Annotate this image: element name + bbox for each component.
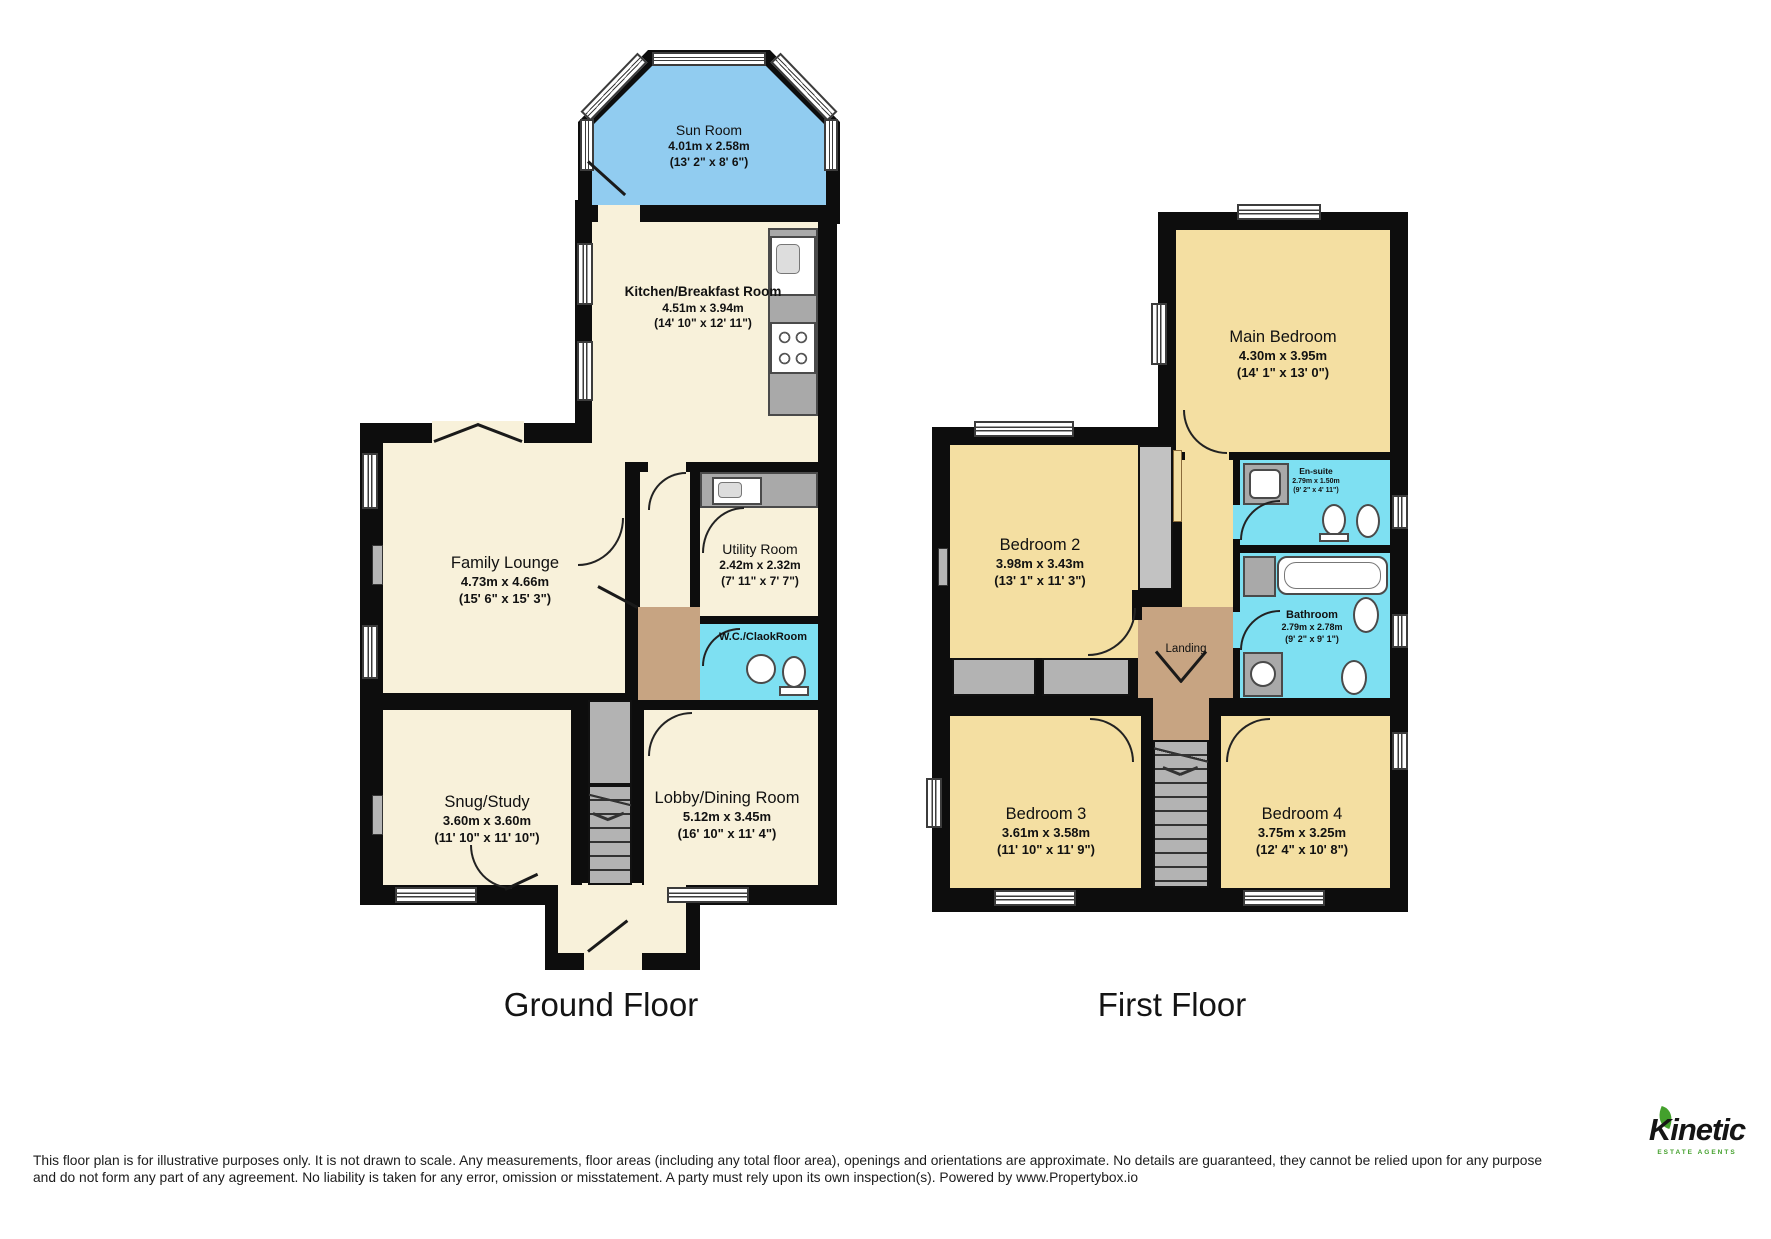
room-name: Sun Room <box>668 121 749 139</box>
basin-icon <box>1250 661 1276 687</box>
room-dims-metric: 2.79m x 1.50m <box>1292 477 1339 486</box>
room-label-sun-room: Sun Room 4.01m x 2.58m (13' 2" x 8' 6") <box>668 121 749 170</box>
stair-landing-floor <box>1153 698 1209 740</box>
room-label-utility: Utility Room 2.42m x 2.32m (7' 11" x 7' … <box>719 540 800 589</box>
room-dims-metric: 2.79m x 2.78m <box>1281 622 1342 634</box>
window <box>974 421 1074 437</box>
door-opening <box>582 883 642 909</box>
landing-corridor-floor <box>1182 460 1233 607</box>
window <box>1243 890 1325 906</box>
room-label-snug: Snug/Study 3.60m x 3.60m (11' 10" x 11' … <box>434 792 539 846</box>
room-label-kitchen: Kitchen/Breakfast Room 4.51m x 3.94m (14… <box>625 283 782 332</box>
built-in-wardrobe <box>1042 658 1130 696</box>
window <box>824 119 838 171</box>
window <box>395 887 477 903</box>
room-dims-imperial: (11' 10" x 11' 9") <box>997 842 1095 859</box>
first-floor-title: First Floor <box>1098 986 1247 1024</box>
toilet-icon <box>1353 597 1379 633</box>
room-label-bathroom: Bathroom 2.79m x 2.78m (9' 2" x 9' 1") <box>1281 608 1342 646</box>
room-name: Bedroom 2 <box>994 535 1086 556</box>
door-opening <box>1233 612 1240 648</box>
room-dims-imperial: (9' 2" x 4' 11") <box>1292 486 1339 495</box>
built-in-wardrobe <box>1138 445 1173 590</box>
room-dims-imperial: (11' 10" x 11' 10") <box>434 830 539 847</box>
hallway-floor <box>638 607 700 700</box>
room-label-ensuite: En-suite 2.79m x 1.50m (9' 2" x 4' 11") <box>1292 466 1339 495</box>
room-dims-imperial: (13' 2" x 8' 6") <box>668 155 749 171</box>
room-dims-imperial: (13' 1" x 11' 3") <box>994 573 1086 590</box>
room-label-lobby: Lobby/Dining Room 5.12m x 3.45m (16' 10"… <box>655 788 800 842</box>
room-name: Bedroom 3 <box>997 804 1095 825</box>
window <box>1392 495 1408 529</box>
room-name: Landing <box>1166 642 1207 657</box>
room-name: Utility Room <box>719 540 800 558</box>
room-dims-imperial: (15' 6" x 15' 3") <box>451 591 559 608</box>
room-name: Bathroom <box>1281 608 1342 622</box>
toilet-cistern-icon <box>779 686 809 696</box>
window <box>652 52 766 66</box>
room-label-bedroom3: Bedroom 3 3.61m x 3.58m (11' 10" x 11' 9… <box>997 804 1095 858</box>
basin-icon <box>1341 660 1367 695</box>
disclaimer-text: This floor plan is for illustrative purp… <box>33 1152 1563 1187</box>
stair-winder-line <box>589 787 631 813</box>
window <box>577 243 593 305</box>
room-dims-metric: 3.60m x 3.60m <box>434 813 539 830</box>
window <box>926 778 942 828</box>
room-dims-imperial: (7' 11" x 7' 7") <box>719 574 800 590</box>
window <box>1151 303 1167 365</box>
toilet-icon <box>1322 504 1346 536</box>
window <box>667 887 749 903</box>
room-label-wc: W.C./ClaokRoom <box>719 630 807 644</box>
room-name: Family Lounge <box>451 553 559 574</box>
room-name: Main Bedroom <box>1229 327 1336 348</box>
room-dims-metric: 4.30m x 3.95m <box>1229 348 1336 365</box>
room-name: Lobby/Dining Room <box>655 788 800 809</box>
logo-wordmark: Kinetic <box>1612 1112 1771 1148</box>
room-label-main-bedroom: Main Bedroom 4.30m x 3.95m (14' 1" x 13'… <box>1229 327 1336 381</box>
room-dims-metric: 3.61m x 3.58m <box>997 825 1095 842</box>
shower-tray-icon <box>1249 469 1281 499</box>
room-label-landing: Landing <box>1166 642 1207 657</box>
wardrobe-door-panel <box>1173 450 1182 522</box>
room-dims-imperial: (9' 2" x 9' 1") <box>1281 634 1342 646</box>
window <box>1392 732 1408 770</box>
logo-tagline: ESTATE AGENTS <box>1612 1149 1771 1156</box>
room-dims-imperial: (12' 4" x 10' 8") <box>1256 842 1348 859</box>
room-dims-metric: 4.01m x 2.58m <box>668 139 749 155</box>
room-dims-imperial: (16' 10" x 11' 4") <box>655 826 800 843</box>
kinetic-logo: Kinetic ESTATE AGENTS <box>1612 1112 1771 1156</box>
chimney-recess <box>372 795 383 835</box>
room-label-bedroom4: Bedroom 4 3.75m x 3.25m (12' 4" x 10' 8"… <box>1256 804 1348 858</box>
vanity-unit <box>1243 556 1276 597</box>
room-dims-imperial: (14' 10" x 12' 11") <box>625 316 782 332</box>
understairs-cupboard <box>588 700 632 785</box>
stair-winder-line <box>1154 742 1208 768</box>
floorplan-canvas: Sun Room 4.01m x 2.58m (13' 2" x 8' 6") … <box>0 0 1771 1239</box>
window <box>362 625 378 679</box>
room-name: En-suite <box>1292 466 1339 477</box>
room-dims-metric: 3.98m x 3.43m <box>994 556 1086 573</box>
room-label-family-lounge: Family Lounge 4.73m x 4.66m (15' 6" x 15… <box>451 553 559 607</box>
window <box>362 453 378 509</box>
sink-basin-icon <box>776 244 800 274</box>
window <box>1237 204 1321 220</box>
window <box>994 890 1076 906</box>
room-name: W.C./ClaokRoom <box>719 630 807 644</box>
chimney-recess <box>938 548 948 586</box>
room-dims-metric: 5.12m x 3.45m <box>655 809 800 826</box>
toilet-cistern-icon <box>1319 533 1349 542</box>
basin-icon <box>746 654 776 684</box>
room-name: Bedroom 4 <box>1256 804 1348 825</box>
door-opening <box>598 205 640 224</box>
bathtub-inner-icon <box>1284 562 1381 589</box>
room-dims-metric: 4.51m x 3.94m <box>625 301 782 317</box>
room-dims-imperial: (14' 1" x 13' 0") <box>1229 365 1336 382</box>
chimney-recess <box>372 545 383 585</box>
toilet-icon <box>782 656 806 688</box>
room-name: Kitchen/Breakfast Room <box>625 283 782 301</box>
room-name: Snug/Study <box>434 792 539 813</box>
sink-basin-icon <box>718 482 742 498</box>
window <box>1392 614 1408 648</box>
ground-floor-title: Ground Floor <box>504 986 698 1024</box>
basin-icon <box>1356 504 1380 538</box>
room-dims-metric: 2.42m x 2.32m <box>719 558 800 574</box>
door-opening <box>1233 505 1240 539</box>
room-dims-metric: 4.73m x 4.66m <box>451 574 559 591</box>
room-label-bedroom2: Bedroom 2 3.98m x 3.43m (13' 1" x 11' 3"… <box>994 535 1086 589</box>
window <box>577 341 593 401</box>
built-in-wardrobe <box>952 658 1036 696</box>
room-dims-metric: 3.75m x 3.25m <box>1256 825 1348 842</box>
